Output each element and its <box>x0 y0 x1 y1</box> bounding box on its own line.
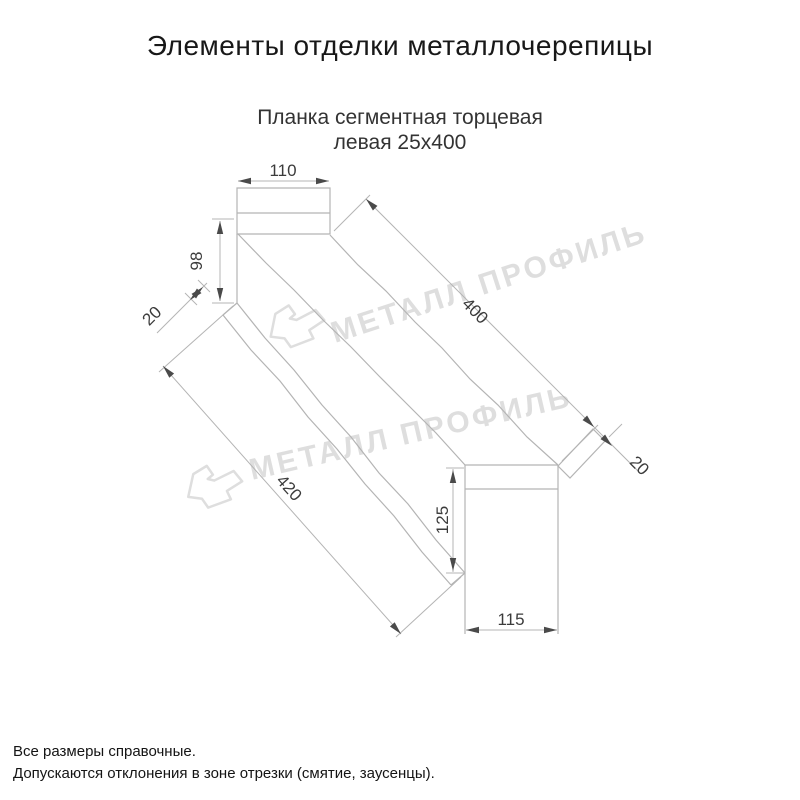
footer-notes: Все размеры справочные. Допускаются откл… <box>13 741 435 785</box>
brand-logo-icon <box>182 459 246 512</box>
dim-20-left-label: 20 <box>139 303 166 330</box>
drawing-page: Элементы отделки металлочерепицы Планка … <box>0 0 800 800</box>
dim-115-label: 115 <box>497 610 524 629</box>
dim-110-label: 110 <box>269 161 296 180</box>
technical-drawing: МЕТАЛЛ ПРОФИЛЬ МЕТАЛЛ ПРОФИЛЬ <box>0 0 800 800</box>
dim-20-right-ext <box>609 424 622 437</box>
dim-98-label: 98 <box>187 252 206 271</box>
left-hem-near-edge <box>451 573 465 585</box>
dim-420-ext2 <box>396 577 461 637</box>
dim-420-line <box>163 366 401 634</box>
dim-420-ext1 <box>159 306 233 372</box>
footer-note-line1: Все размеры справочные. <box>13 741 435 763</box>
brand-logo-icon <box>264 298 328 351</box>
watermark-text-upper: МЕТАЛЛ ПРОФИЛЬ <box>327 216 651 349</box>
dim-400-ext2 <box>562 425 598 461</box>
dimension-labels: 110 98 20 400 20 420 125 115 <box>139 161 653 629</box>
dim-400-ext1 <box>334 195 370 231</box>
right-hem <box>558 429 605 478</box>
dim-20-right-label: 20 <box>626 452 653 479</box>
watermark-text-lower: МЕТАЛЛ ПРОФИЛЬ <box>246 380 575 486</box>
footer-note-line2: Допускаются отклонения в зоне отрезки (с… <box>13 763 435 785</box>
far-end-section <box>237 188 330 234</box>
dim-125-label: 125 <box>433 506 452 534</box>
